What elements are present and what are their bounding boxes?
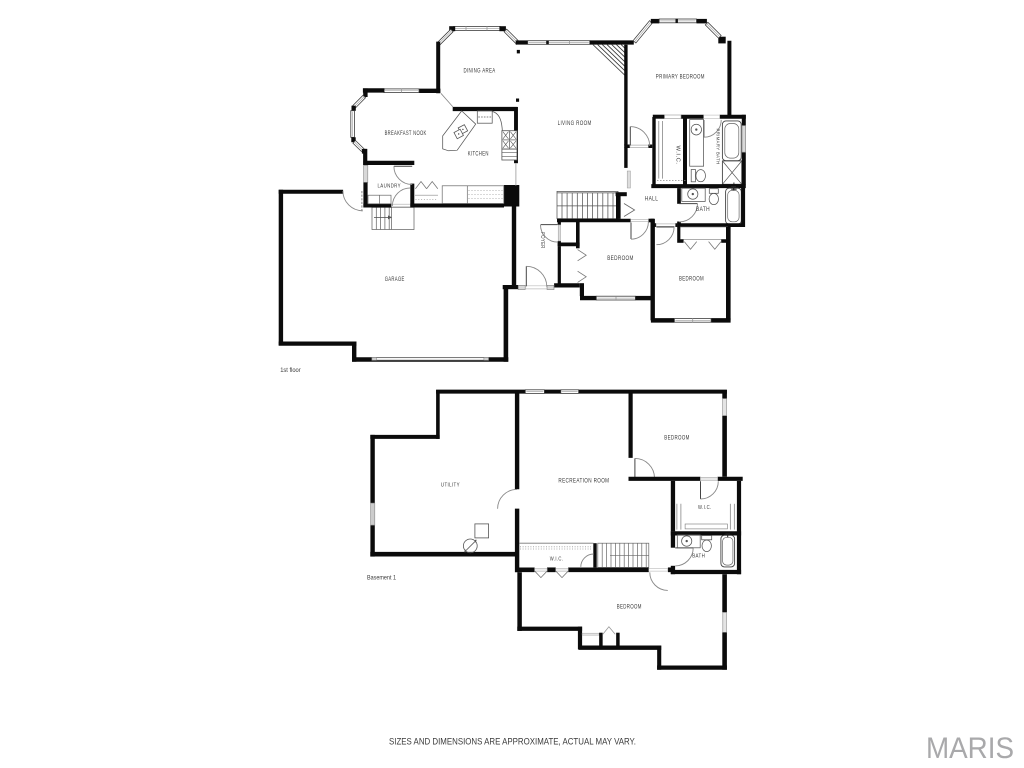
svg-text:RECREATION ROOM: RECREATION ROOM: [558, 479, 609, 485]
svg-text:BEDROOM: BEDROOM: [617, 604, 642, 610]
svg-text:BATH: BATH: [696, 207, 710, 213]
svg-text:GARAGE: GARAGE: [385, 277, 405, 283]
svg-text:BREAKFAST NOOK: BREAKFAST NOOK: [385, 131, 427, 137]
svg-text:UTILITY: UTILITY: [441, 483, 460, 489]
svg-text:MARIS: MARIS: [926, 732, 1014, 765]
svg-text:W.I.C.: W.I.C.: [675, 146, 681, 165]
svg-text:LIVING ROOM: LIVING ROOM: [558, 121, 592, 127]
svg-text:W.I.C.: W.I.C.: [550, 557, 564, 563]
svg-text:HALL: HALL: [645, 196, 659, 202]
svg-text:BEDROOM: BEDROOM: [679, 277, 704, 283]
svg-text:LAUNDRY: LAUNDRY: [378, 183, 401, 189]
svg-text:SIZES AND DIMENSIONS ARE APPRO: SIZES AND DIMENSIONS ARE APPROXIMATE, AC…: [389, 737, 636, 747]
svg-text:BEDROOM: BEDROOM: [664, 436, 689, 442]
svg-text:W.I.C.: W.I.C.: [698, 505, 712, 511]
svg-text:KITCHEN: KITCHEN: [468, 152, 489, 158]
svg-text:PRIMARY BATH: PRIMARY BATH: [716, 129, 721, 165]
svg-text:1st floor: 1st floor: [280, 367, 301, 374]
svg-text:Basement 1: Basement 1: [367, 575, 396, 582]
svg-text:BEDROOM: BEDROOM: [607, 256, 634, 262]
svg-text:DINING AREA: DINING AREA: [464, 69, 496, 75]
svg-text:BATH: BATH: [692, 553, 705, 559]
svg-text:PRIMARY BEDROOM: PRIMARY BEDROOM: [656, 75, 705, 81]
svg-text:FOYER: FOYER: [539, 232, 545, 249]
